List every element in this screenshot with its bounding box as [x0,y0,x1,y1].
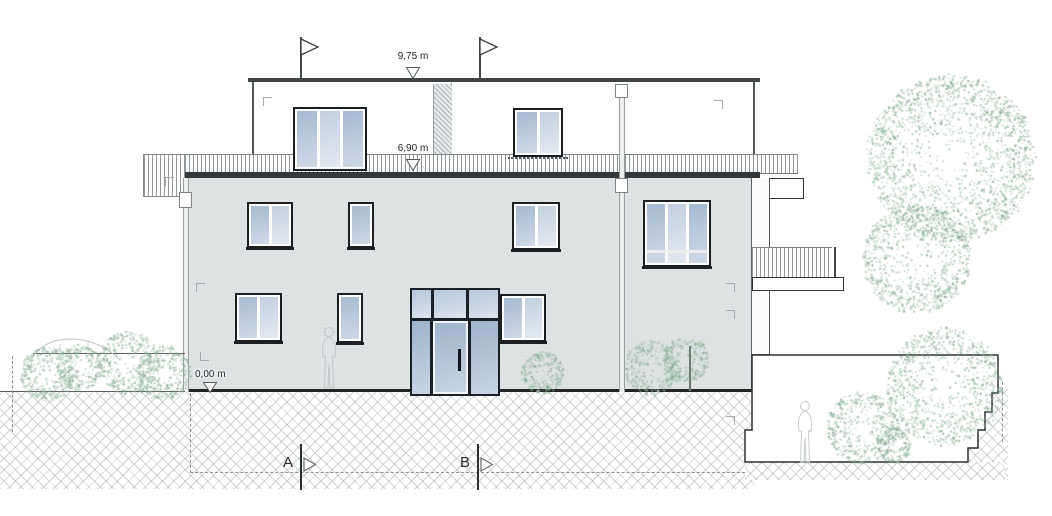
window-pane [689,204,707,263]
corner-mark [726,283,735,292]
section-line-b [477,444,479,490]
corner-mark [196,283,205,292]
window-pane [538,206,557,246]
window-pane [668,204,686,263]
section-label-a: A [283,454,293,471]
window-pane [504,298,522,338]
window-pane [272,206,290,244]
window-sill [511,249,561,252]
section-arrow-icon [480,457,494,472]
window-upper-3 [512,202,560,250]
window-mullion [647,250,707,253]
level-marker-icon [406,159,420,171]
window-penthouse-right [513,108,563,157]
dimension-label-ground: 0,00 m [195,369,237,380]
window-sill [347,247,375,250]
corner-mark [726,416,735,425]
section-label-b: B [460,454,470,471]
window-pane [341,297,359,339]
door-sidelight-right [471,321,498,394]
window-ground-1 [235,293,282,342]
window-upper-2 [348,202,374,248]
right-yard-outline [0,0,1052,516]
window-upper-1 [247,202,293,248]
corner-mark [726,310,735,319]
window-ground-2 [337,293,363,343]
level-marker-icon [203,382,217,393]
window-sill [642,266,712,269]
section-line-a [300,444,302,490]
tree-trunk [689,346,691,391]
dimension-label-balcony: 6,90 m [383,143,443,154]
window-pane [320,111,340,167]
window-pane [343,111,363,167]
window-ground-3 [500,294,546,342]
window-pane [297,111,317,167]
door-sidelight-left [412,321,430,394]
corner-mark [263,97,272,106]
elevation-drawing: 9,75 m 6,90 m [0,0,1052,516]
window-pane [260,297,278,338]
window-pane [517,112,537,153]
section-arrow-icon [303,457,317,472]
window-pane [239,297,257,338]
door-leaf [433,321,468,394]
person-outline [794,400,816,464]
window-pane [352,206,370,244]
window-penthouse-left [293,107,367,171]
window-pane [251,206,269,244]
window-pane [540,112,560,153]
window-upper-4 [643,200,711,267]
window-pane [516,206,535,246]
door-transom [412,290,498,318]
window-sill [499,341,547,344]
boundary-line-right [1002,382,1003,442]
window-pane [647,204,665,263]
corner-mark [714,100,723,109]
entrance-door [410,288,500,396]
window-pane [525,298,543,338]
window-sill [234,341,283,344]
window-sill [246,247,294,250]
window-sill [336,342,364,345]
door-handle [458,349,461,371]
corner-mark [165,177,174,186]
dotted-sill-line [508,157,568,159]
car-outline [30,334,122,360]
